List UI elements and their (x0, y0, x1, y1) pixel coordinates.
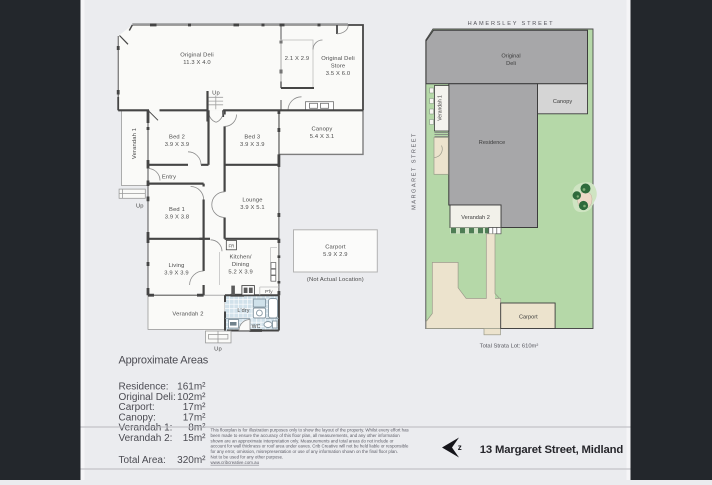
svg-text:been made to ensure the accura: been made to ensure the accuracy of this… (211, 433, 401, 438)
svg-text:5.2 X 3.9: 5.2 X 3.9 (228, 270, 253, 276)
svg-text:2.1 X 2.9: 2.1 X 2.9 (285, 56, 310, 62)
svg-text:Carport: Carport (325, 245, 346, 251)
svg-text:Not to be used for any other p: Not to be used for any other purpose. (211, 455, 284, 460)
svg-text:Verandah 2:: Verandah 2: (119, 433, 173, 444)
svg-text:13 Margaret Street, Midland: 13 Margaret Street, Midland (480, 444, 624, 456)
svg-text:for any error, omission, misre: for any error, omission, misrepresentati… (211, 449, 398, 454)
svg-text:Store: Store (331, 64, 346, 70)
svg-text:Total Area:: Total Area: (119, 455, 166, 466)
svg-text:WC: WC (252, 324, 261, 330)
svg-text:Verandah 2: Verandah 2 (461, 215, 490, 221)
svg-text:MARGARET STREET: MARGARET STREET (412, 132, 418, 210)
svg-text:Bed 2: Bed 2 (169, 135, 185, 141)
svg-text:P'fy: P'fy (265, 289, 273, 294)
svg-text:Canopy: Canopy (553, 99, 572, 105)
svg-text:Canopy: Canopy (312, 127, 333, 133)
svg-text:Original: Original (501, 54, 520, 60)
svg-text:Up: Up (136, 204, 144, 210)
svg-text:5.9 X 2.9: 5.9 X 2.9 (323, 252, 348, 258)
svg-text:5.4 X 3.1: 5.4 X 3.1 (310, 134, 335, 140)
svg-text:Entry: Entry (162, 175, 176, 181)
svg-text:FR: FR (228, 244, 234, 249)
svg-text:Original Deli: Original Deli (321, 56, 355, 62)
svg-text:HAMERSLEY STREET: HAMERSLEY STREET (468, 21, 555, 27)
svg-text:320m²: 320m² (177, 455, 206, 466)
svg-text:Residence: Residence (479, 140, 505, 146)
svg-text:Deli: Deli (506, 61, 516, 67)
svg-text:3.9 X 3.9: 3.9 X 3.9 (165, 142, 190, 148)
svg-text:L'dry: L'dry (237, 308, 249, 314)
svg-text:shown are an approximate inter: shown are an approximate interpretation … (211, 438, 395, 443)
svg-text:Up: Up (214, 347, 222, 353)
svg-text:Dining: Dining (232, 262, 249, 268)
svg-text:z: z (458, 443, 462, 452)
svg-text:3.9 X 3.9: 3.9 X 3.9 (240, 142, 265, 148)
svg-text:Total Strata Lot: 610m²: Total Strata Lot: 610m² (480, 344, 539, 350)
svg-text:Lounge: Lounge (242, 198, 262, 204)
svg-text:3.9 X 3.8: 3.9 X 3.8 (165, 215, 190, 221)
svg-text:account for wall thickness or: account for wall thickness or roof area … (211, 444, 409, 449)
svg-text:3.9 X 5.1: 3.9 X 5.1 (240, 205, 265, 211)
svg-text:www.cribcreative.com.au: www.cribcreative.com.au (211, 460, 260, 465)
svg-text:Up: Up (212, 91, 220, 97)
svg-text:Verandah 1: Verandah 1 (438, 95, 444, 121)
svg-text:Original Deli: Original Deli (180, 53, 214, 59)
svg-text:Kitchen/: Kitchen/ (230, 255, 252, 261)
svg-text:3.9 X 3.9: 3.9 X 3.9 (164, 271, 189, 277)
svg-text:11.3 X 4.0: 11.3 X 4.0 (183, 60, 211, 66)
svg-text:Verandah 2: Verandah 2 (172, 312, 203, 318)
svg-text:Bed 3: Bed 3 (244, 135, 260, 141)
svg-text:3.5 X 6.0: 3.5 X 6.0 (326, 71, 351, 77)
svg-text:Carport: Carport (519, 315, 538, 321)
svg-text:Verandah 1: Verandah 1 (132, 128, 138, 159)
svg-text:This floorplan is for illustra: This floorplan is for illustration purpo… (211, 428, 410, 433)
svg-text:(Not Actual Location): (Not Actual Location) (307, 277, 364, 283)
svg-text:Approximate Areas: Approximate Areas (119, 355, 209, 367)
svg-text:Bed 1: Bed 1 (169, 207, 185, 213)
svg-text:Living: Living (168, 263, 184, 269)
svg-text:15m²: 15m² (183, 433, 206, 444)
